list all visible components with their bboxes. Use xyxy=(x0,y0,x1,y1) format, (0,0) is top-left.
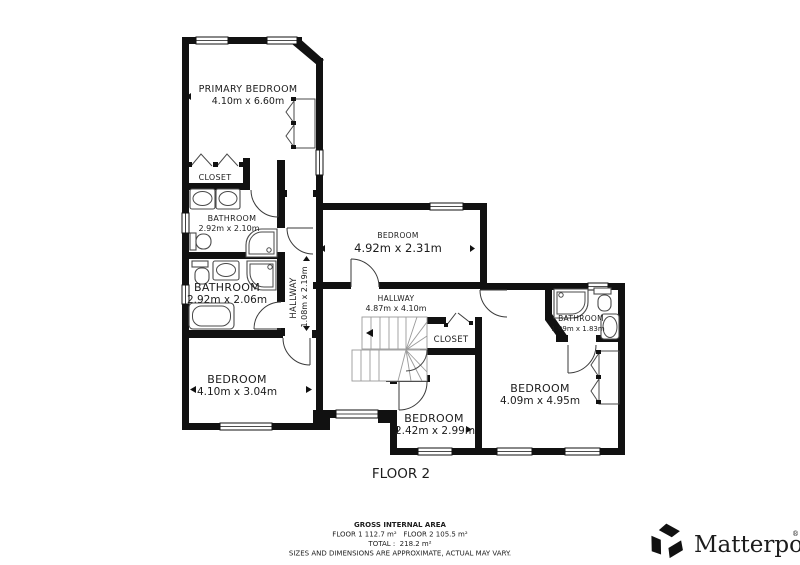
room-dims-bedroom-left: 4.10m x 3.04m xyxy=(197,386,277,398)
room-dims-bathroom-upper: 2.92m x 2.10m xyxy=(198,224,259,233)
window xyxy=(267,37,297,44)
matterport-logo: Matterport ® xyxy=(645,524,800,562)
window xyxy=(196,37,228,44)
matterport-wordmark: Matterport xyxy=(694,532,800,558)
room-dims-primary-bedroom: 4.10m x 6.60m xyxy=(212,96,284,107)
room-label-hallway-small: HALLWAY xyxy=(289,277,299,319)
floor-areas-line: FLOOR 1 112.7 m² FLOOR 2 105.5 m² xyxy=(332,531,468,539)
room-label-closet-center: CLOSET xyxy=(434,335,469,345)
room-dims-bedroom-mid: 4.92m x 2.31m xyxy=(354,241,442,255)
room-label-primary-bedroom: PRIMARY BEDROOM xyxy=(199,84,298,95)
window xyxy=(497,448,532,455)
room-label-bathroom-upper: BATHROOM xyxy=(208,214,257,223)
footer-area-summary: GROSS INTERNAL AREA FLOOR 1 112.7 m² FLO… xyxy=(289,521,511,558)
registered-trademark-symbol: ® xyxy=(792,530,799,538)
door-bedroom-right xyxy=(480,290,507,317)
door-bedroom-mid xyxy=(351,259,379,287)
disclaimer-text: SIZES AND DIMENSIONS ARE APPROXIMATE, AC… xyxy=(289,550,511,558)
room-dims-bedroom-right: 4.09m x 4.95m xyxy=(500,395,580,407)
door-bedroom-left xyxy=(283,338,310,365)
matterport-logo-icon xyxy=(645,524,687,562)
floor-title: FLOOR 2 xyxy=(372,466,430,482)
staircase xyxy=(352,317,427,381)
floorplan-page: PRIMARY BEDROOM 4.10m x 6.60m CLOSET BAT… xyxy=(0,0,800,565)
window xyxy=(430,203,463,210)
total-area-line: TOTAL : 218.2 m² xyxy=(367,540,431,548)
window xyxy=(418,448,452,455)
room-label-bedroom-mid: BEDROOM xyxy=(377,231,418,240)
room-dims-hallway-main: 4.87m x 4.10m xyxy=(365,304,426,313)
gross-internal-area-label: GROSS INTERNAL AREA xyxy=(354,521,446,529)
room-dims-hallway-small: 1.08m x 2.19m xyxy=(300,266,309,327)
bathtub xyxy=(189,303,234,329)
toilet xyxy=(192,261,208,267)
room-label-closet-upper: CLOSET xyxy=(199,173,232,182)
window xyxy=(565,448,600,455)
door-bathroom-small xyxy=(568,345,596,373)
room-label-bathroom-small: BATHROOM xyxy=(558,314,604,323)
closet-upper-bifold-doors xyxy=(187,154,244,167)
door-closet-center xyxy=(444,313,473,327)
door-bedroom-small xyxy=(399,382,427,410)
door-bathroom-upper-top xyxy=(251,190,278,217)
room-label-bedroom-right: BEDROOM xyxy=(510,382,570,395)
room-label-bedroom-small: BEDROOM xyxy=(404,412,464,425)
window xyxy=(220,423,272,430)
window xyxy=(316,150,323,175)
shower xyxy=(246,229,277,257)
room-label-bedroom-left: BEDROOM xyxy=(207,373,267,386)
bedroom-right-wardrobe xyxy=(591,350,619,404)
window xyxy=(182,213,189,233)
room-label-bathroom-mid: BATHROOM xyxy=(194,281,260,294)
floorplan-canvas: PRIMARY BEDROOM 4.10m x 6.60m CLOSET BAT… xyxy=(0,0,800,565)
door-bathroom-mid xyxy=(254,302,281,329)
bathroom-upper-fixtures xyxy=(190,189,277,257)
room-dims-bathroom-mid: 2.92m x 2.06m xyxy=(187,294,267,306)
toilet xyxy=(190,233,196,250)
room-dims-bathroom-small: 1.99m x 1.83m xyxy=(551,325,605,333)
door-hallway-small-top xyxy=(287,228,313,254)
room-dims-bedroom-small: 2.42m x 2.99m xyxy=(395,425,475,437)
room-label-hallway-main: HALLWAY xyxy=(378,294,415,303)
window xyxy=(336,410,378,418)
toilet xyxy=(594,288,611,294)
primary-bedroom-wardrobe xyxy=(286,97,315,149)
